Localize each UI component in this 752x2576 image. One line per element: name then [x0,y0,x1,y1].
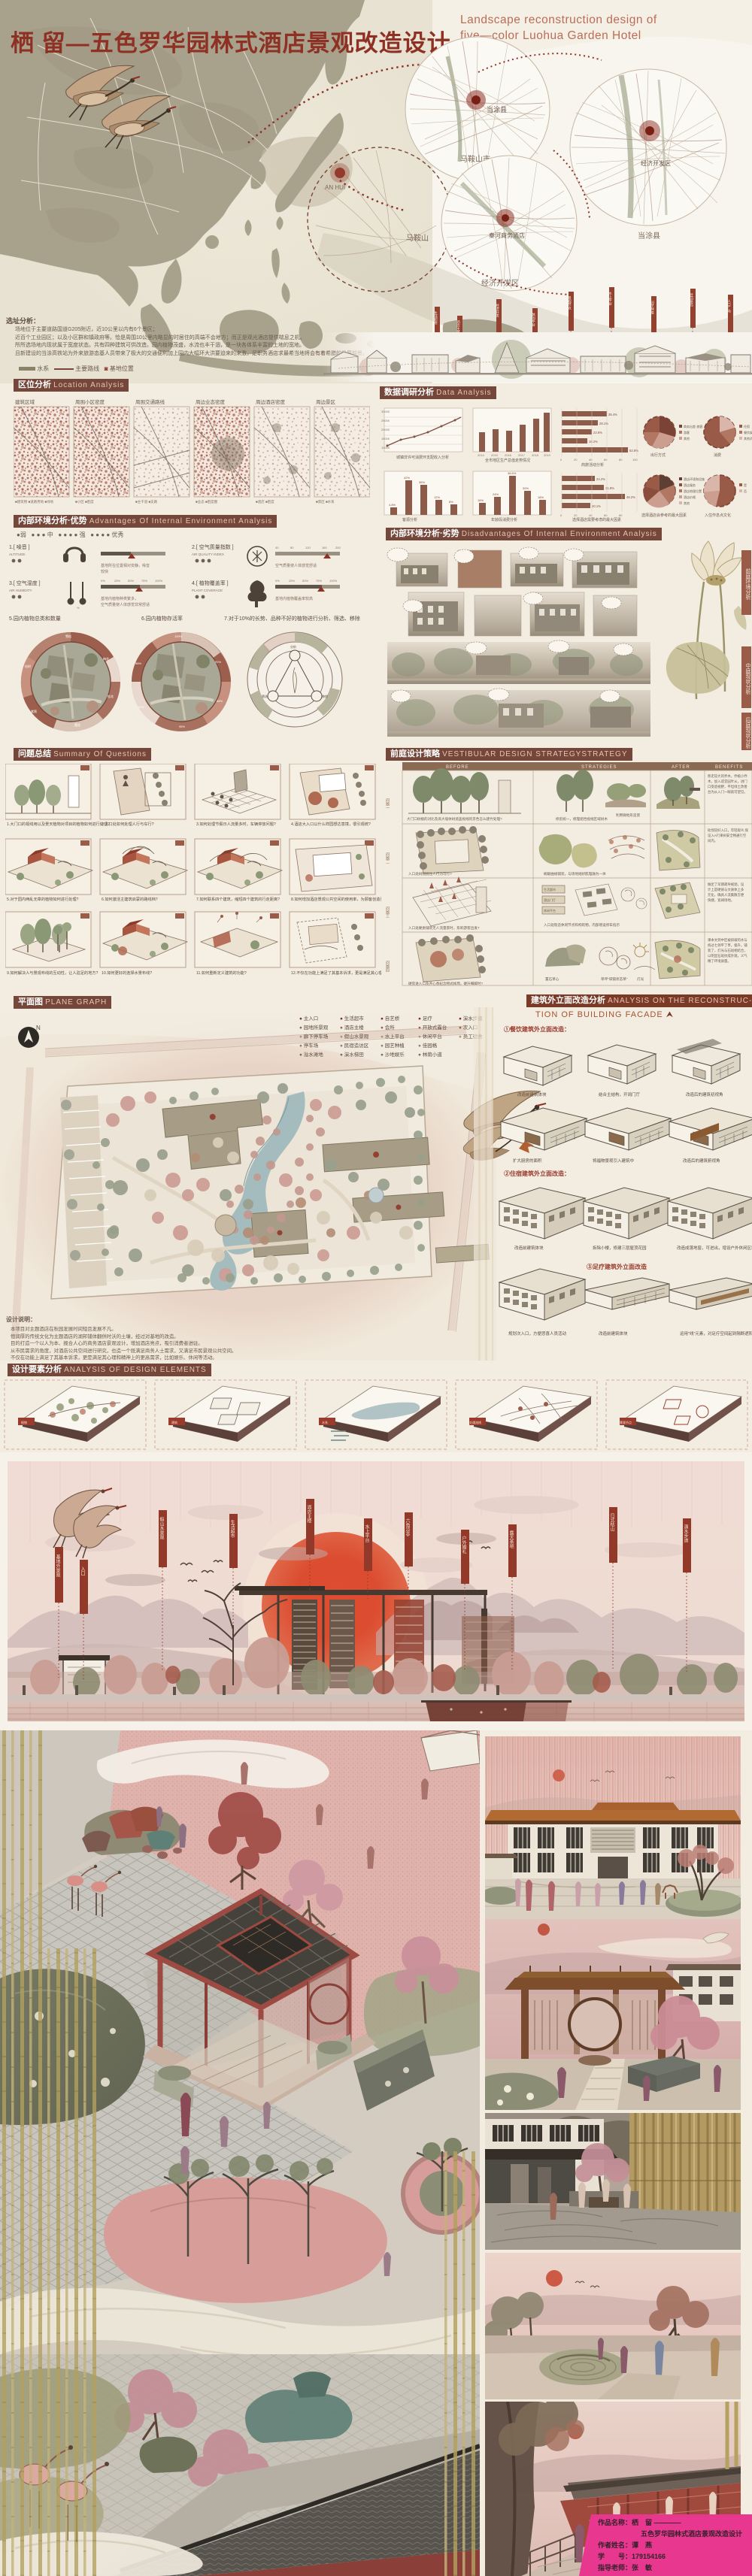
svg-text:城镇非许可消费环支配收入分析: 城镇非许可消费环支配收入分析 [396,455,449,460]
svg-text:25%: 25% [289,579,295,583]
svg-text:40: 40 [589,458,593,462]
svg-text:酒店地理位置: 酒店地理位置 [684,489,702,493]
svg-text:周边酒店密度: 周边酒店密度 [256,398,286,405]
svg-text:大门口树植的对比及高大墙体树遮盖视线的京色怎么建竹处理?: 大门口树植的对比及高大墙体树遮盖视线的京色怎么建竹处理? [407,816,502,822]
svg-text:园艺种植: 园艺种植 [650,301,655,316]
svg-text:100: 100 [632,458,638,462]
svg-text:3.[ 空气湿度 ]: 3.[ 空气湿度 ] [9,580,41,586]
svg-text:酒店服务: 酒店服务 [684,483,696,487]
svg-text:其他消费: 其他消费 [744,436,752,440]
svg-text:户外婚礼: 户外婚礼 [461,1535,466,1554]
svg-text:灯光: 灯光 [637,976,644,982]
svg-text:修剪统一，梳理遮挡视线区域树木: 修剪统一，梳理遮挡视线区域树木 [556,816,608,822]
svg-text:1.大门口的视线用以及景天植物对项目的植物如何进行处理?: 1.大门口的视线用以及景天植物对项目的植物如何进行处理? [7,821,110,827]
svg-text:10.如何更好的连择水景布线?: 10.如何更好的连择水景布线? [102,970,152,976]
svg-text:2014: 2014 [478,453,485,457]
svg-text:75%: 75% [316,579,322,583]
svg-text:80: 80 [290,546,294,549]
svg-text:生活超市: 生活超市 [544,887,556,891]
svg-text:露天茶吧: 露天茶吧 [508,1530,514,1548]
svg-text:其他: 其他 [684,436,690,440]
svg-text:③足疗建筑外立面改造: ③足疗建筑外立面改造 [587,1263,647,1270]
svg-text:12.不仅在功能上满足了其基本诉求，更是满足其心理和精神上的: 12.不仅在功能上满足了其基本诉求，更是满足其心理和精神上的更高需求。 [291,970,381,976]
svg-text:演水步道: 演水步道 [683,1524,688,1543]
svg-text:52.8%: 52.8% [629,449,638,453]
svg-text:问题一: 问题一 [386,798,390,810]
svg-text:樱花: 樱花 [74,722,80,727]
svg-text:BEFORE: BEFORE [446,765,469,770]
svg-text:改造成落地窗，可进出，增设户外休闲区域: 改造成落地窗，可进出，增设户外休闲区域 [677,1245,752,1251]
svg-text:25000: 25000 [381,419,390,422]
svg-text:游客: 游客 [684,430,690,434]
svg-text:60: 60 [604,458,608,462]
svg-text:BENEFITS: BENEFITS [715,765,743,770]
svg-text:景观节点: 景观节点 [568,296,572,311]
svg-text:酒店门厅: 酒店门厅 [544,898,556,902]
svg-text:95%: 95% [179,725,185,728]
svg-text:4.8%: 4.8% [389,503,396,507]
svg-text:7.如何联系四个建筑，缩短四个建筑的行走距离?: 7.如何联系四个建筑，缩短四个建筑的行走距离? [196,896,280,902]
svg-text:②住宿建筑外立面改造：: ②住宿建筑外立面改造： [504,1170,570,1177]
svg-text:入口处硬质铺装无人流量景时，形响游客出发?: 入口处硬质铺装无人流量景时，形响游客出发? [408,925,480,931]
svg-text:改造后的建筑初视角: 改造后的建筑初视角 [686,1091,723,1097]
svg-text:24.2%: 24.2% [596,477,605,481]
svg-text:90%: 90% [138,705,144,709]
svg-text:98%: 98% [135,661,141,665]
svg-text:酒店主楼: 酒店主楼 [306,1504,311,1524]
svg-text:生活超市: 生活超市 [229,1519,235,1539]
svg-text:■主干道 ■支路: ■主干道 ■支路 [135,499,158,504]
svg-text:■小区 ■密度: ■小区 ■密度 [75,499,94,504]
svg-text:2018: 2018 [532,453,539,457]
svg-text:■业态 ■密度圈: ■业态 ■密度圈 [196,499,218,504]
svg-text:STRATEGIES: STRATEGIES [581,765,617,770]
svg-text:扩大厨房的面积: 扩大厨房的面积 [513,1158,542,1164]
svg-text:100%: 100% [329,579,338,583]
svg-text:50%: 50% [128,579,134,583]
svg-text:AIR HUMIDITY: AIR HUMIDITY [9,589,32,592]
svg-text:10000: 10000 [381,446,390,450]
svg-text:其他: 其他 [684,501,690,505]
svg-text:入口处树围拢住人行为可行?: 入口处树围拢住人行为可行? [408,871,452,876]
svg-text:酒店环境和设施: 酒店环境和设施 [684,477,705,481]
svg-text:较快: 较快 [101,569,108,574]
svg-text:2017: 2017 [518,453,526,457]
svg-text:商旅活动分析: 商旅活动分析 [581,462,604,468]
svg-text:15000: 15000 [381,437,390,440]
svg-text:20.1%: 20.1% [592,504,601,508]
svg-text:2.入口处如何处理人行与车行?: 2.入口处如何处理人行与车行? [102,821,154,827]
svg-text:住宿: 住宿 [744,424,750,428]
svg-text:拆除小楼，修建三层屋顶花园: 拆除小楼，修建三层屋顶花园 [593,1245,647,1251]
svg-text:课本文到中区被斜坡的水与统过七领平了草，极升，铺装了，灯光与: 课本文到中区被斜坡的水与统过七领平了草，极升，铺装了，灯光与石斑相结合，以明显石… [708,937,747,964]
svg-text:水系: 水系 [322,1420,328,1424]
svg-text:是: 是 [744,483,747,487]
svg-text:雪松: 雪松 [65,634,71,638]
svg-text:6.如何激活主建筑启蒙的路线档?: 6.如何激活主建筑启蒙的路线档? [102,896,158,902]
svg-text:紫薇: 紫薇 [31,709,37,713]
svg-text:2019: 2019 [544,453,551,457]
svg-text:改造前建筑体块: 改造前建筑体块 [599,1330,628,1336]
svg-text:88%: 88% [217,699,223,703]
svg-text:蜿蜒曲线铺装，与场地她状肌理融为一体: 蜿蜒曲线铺装，与场地她状肌理融为一体 [544,871,606,876]
svg-text:商务出差·旅客: 商务出差·旅客 [684,424,702,428]
svg-text:N: N [36,1025,41,1031]
svg-text:消费: 消费 [714,453,721,458]
svg-text:100%: 100% [155,579,163,583]
svg-text:生活超市: 生活超市 [434,310,438,326]
svg-text:休闲平台: 休闲平台 [544,908,556,913]
svg-text:1.[ 噪音 ]: 1.[ 噪音 ] [9,543,30,550]
svg-text:11.如何重新定义建筑的功能?: 11.如何重新定义建筑的功能? [196,970,247,976]
svg-text:200: 200 [335,546,341,549]
svg-text:水上平台: 水上平台 [364,1524,369,1543]
svg-text:入口广场: 入口广场 [727,299,732,313]
svg-text:水上平台: 水上平台 [608,291,613,307]
svg-text:0%: 0% [101,579,105,583]
svg-text:基地内植物种类繁多，: 基地内植物种类繁多， [101,596,138,601]
svg-text:改造前建筑体块: 改造前建筑体块 [514,1245,544,1251]
svg-text:22.6%: 22.6% [593,431,602,434]
svg-text:50%: 50% [302,579,308,583]
svg-text:35.4%: 35.4% [608,413,617,416]
svg-text:佳园格局: 佳园格局 [690,292,694,308]
svg-text:利用微地形造景: 利用微地形造景 [616,813,641,818]
svg-text:4.[ 植物覆盖率 ]: 4.[ 植物覆盖率 ] [192,580,229,586]
svg-text:分析: 分析 [290,644,296,649]
svg-text:30%: 30% [523,486,529,490]
svg-text:AFTER: AFTER [672,765,690,770]
svg-text:做足了早期疏导规划，设计上是硬质与文质体上多元化，确具人流集: 做足了早期疏导规划，设计上是硬质与文质体上多元化，确具人流集散方便快捷，宽阔场地… [708,882,744,903]
svg-text:120: 120 [305,546,311,549]
svg-text:空气质量使人体感觉非常舒适: 空气质量使人体感觉非常舒适 [101,602,150,607]
svg-text:出行方式: 出行方式 [650,453,666,458]
svg-text:日式枯山: 日式枯山 [609,1513,614,1532]
svg-text:36%: 36% [419,480,425,484]
svg-text:入口处现造休闲节点和构筑物，内部增设停车指示: 入口处现造休闲节点和构筑物，内部增设停车指示 [544,922,620,928]
svg-text:2.[ 空气质量指数 ]: 2.[ 空气质量指数 ] [192,543,234,550]
svg-text:2016: 2016 [505,453,512,457]
svg-text:30000: 30000 [381,410,390,413]
svg-text:AIR QUALITY INDEX: AIR QUALITY INDEX [192,552,224,556]
svg-text:28.1%: 28.1% [599,422,608,425]
svg-text:3.如何处理节假日人流量多时，车辆停放问题?: 3.如何处理节假日人流量多时，车辆停放问题? [196,821,276,827]
svg-text:75%: 75% [141,579,147,583]
svg-text:周边景区: 周边景区 [316,399,336,405]
svg-text:2015: 2015 [491,453,499,457]
svg-text:基地内植物覆盖率较高: 基地内植物覆盖率较高 [275,596,313,601]
svg-text:景观节点: 景观节点 [620,1420,632,1424]
svg-text:植物: 植物 [21,1420,27,1424]
svg-text:周边业态密度: 周边业态密度 [196,398,226,405]
svg-text:100%: 100% [174,634,183,638]
svg-text:梅花: 梅花 [103,656,109,661]
svg-text:12%: 12% [434,495,440,499]
svg-text:92%: 92% [215,660,221,664]
svg-text:桂花: 桂花 [108,694,114,698]
svg-text:18%: 18% [538,495,544,499]
svg-text:全市地区生产总值走势情况: 全市地区生产总值走势情况 [485,458,530,463]
svg-text:结合主结构，开阔门厅: 结合主结构，开阔门厅 [599,1091,641,1097]
svg-text:周围小区密度: 周围小区密度 [75,398,105,405]
svg-text:改造后的建筑俯视角: 改造后的建筑俯视角 [683,1158,720,1164]
svg-text:4.酒店大入口以什么样园想达意境，很引观统?: 4.酒店大入口以什么样园想达意境，很引观统? [291,821,371,827]
svg-text:0: 0 [560,458,562,462]
svg-text:80: 80 [619,458,623,462]
svg-text:规划次入口，方便悲喜人员活动: 规划次入口，方便悲喜人员活动 [508,1330,567,1336]
svg-text:酒店价格: 酒店价格 [684,495,696,499]
svg-text:餐饮娱乐消费: 餐饮娱乐消费 [744,430,752,434]
svg-text:将福物景观引入建筑中: 将福物景观引入建筑中 [593,1158,634,1164]
svg-text:ALTITUDE: ALTITUDE [9,552,25,556]
svg-text:0%: 0% [275,579,280,583]
svg-text:■酒店 ■密度: ■酒店 ■密度 [256,499,274,504]
svg-text:16%: 16% [478,498,484,502]
svg-text:■景区 ■水系: ■景区 ■水系 [316,499,335,504]
svg-text:运用"线"元素，对足疗空间起到隔断遮阳作用: 运用"线"元素，对足疗空间起到隔断遮阳作用 [680,1330,752,1336]
svg-text:筛选: 筛选 [262,694,268,698]
svg-text:建筑: 建筑 [171,1420,177,1424]
svg-text:移除: 移除 [322,694,328,698]
svg-text:问题二: 问题二 [386,852,390,864]
svg-text:六角凉亭: 六角凉亭 [405,1518,410,1536]
svg-text:5.对于园内两乱无章的植物如何进行处理?: 5.对于园内两乱无章的植物如何进行处理? [7,896,79,902]
svg-text:48.6%: 48.6% [508,471,517,475]
svg-text:46.2%: 46.2% [626,495,635,499]
svg-text:20000: 20000 [381,428,390,431]
svg-text:8.如何增加酒店景观公共空间的使用率，为顾客创造更多的活动空: 8.如何增加酒店景观公共空间的使用率，为顾客创造更多的活动空间? [291,896,381,902]
svg-text:建筑区域: 建筑区域 [15,398,35,405]
svg-text:■建筑物 ■道路用地 ■绿地: ■建筑物 ■道路用地 ■绿地 [15,499,54,504]
svg-text:24%: 24% [493,492,499,496]
svg-text:42%: 42% [404,476,410,480]
svg-text:空气质量使人体感觉舒适: 空气质量使人体感觉舒适 [275,563,317,568]
svg-text:入口: 入口 [80,1566,85,1576]
svg-text:交通流线: 交通流线 [469,1420,481,1424]
svg-text:置石草心: 置石草心 [545,976,559,982]
svg-text:9.如何解决人与景观布线的互动性，让人驻足的地方?: 9.如何解决人与景观布线的互动性，让人驻足的地方? [7,970,98,976]
svg-text:问题四: 问题四 [386,960,390,972]
svg-text:AN HUI: AN HUI [325,184,345,191]
svg-text:基地所在位置相对安静，噪音: 基地所在位置相对安静，噪音 [101,563,150,568]
svg-text:周围交通路线: 周围交通路线 [135,398,165,405]
svg-text:8%: 8% [449,500,453,504]
svg-text:20: 20 [574,458,578,462]
svg-text:160: 160 [322,546,327,549]
svg-text:40: 40 [275,546,279,549]
svg-text:经济开发: 经济开发 [496,303,500,319]
svg-text:草坪"碳铺状态草": 草坪"碳铺状态草" [601,976,628,982]
svg-text:砍伐较好入口，年轻观众,保证入A行果树安全畅通行空间内。: 砍伐较好入口，年轻观众,保证入A行果树安全畅通行空间内。 [708,828,749,843]
svg-text:问题三: 问题三 [386,906,390,918]
svg-text:基地外景观: 基地外景观 [55,1554,60,1578]
svg-text:移走较大的乔木，乔植小乔木，加入适宜园叶从，进门口受遮视野，: 移走较大的乔木，乔植小乔木，加入适宜园叶从，进门口受遮视野，平坦绿土改善台为从入… [708,773,747,795]
svg-text:18.2%: 18.2% [589,440,598,443]
svg-text:休闲平台: 休闲平台 [532,312,536,328]
svg-text:松树: 松树 [25,664,31,668]
svg-text:否: 否 [744,489,747,493]
svg-text:%: % [77,606,80,610]
svg-text:25%: 25% [114,579,120,583]
svg-text:①餐饮建筑外立面改造：: ①餐饮建筑外立面改造： [504,1025,570,1033]
svg-text:硬装进入口及开心香纪念物式样周，硬升细脚时?: 硬装进入口及开心香纪念物式样周，硬升细脚时? [408,981,483,986]
svg-text:假山水景观: 假山水景观 [159,1516,164,1540]
svg-text:改造前建筑体块: 改造前建筑体块 [517,1091,547,1097]
svg-text:PLANT COVERAGE: PLANT COVERAGE [192,589,223,592]
